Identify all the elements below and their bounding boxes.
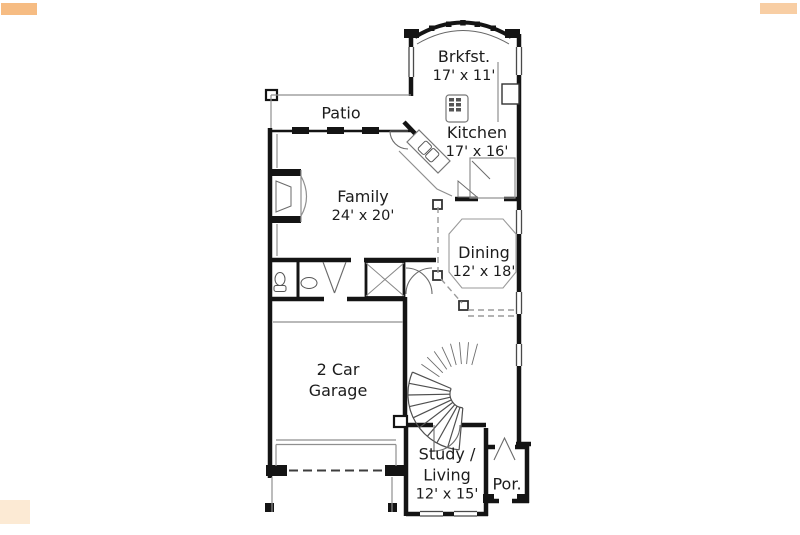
room-name-line2: Garage [309, 380, 368, 401]
powder-room [274, 273, 317, 292]
patio-door-swing [390, 131, 408, 149]
upper-flight-hatch [421, 342, 477, 377]
room-label-brkfst: Brkfst. 17' x 11' [433, 46, 496, 86]
room-label-dining: Dining 12' x 18' [453, 242, 516, 282]
refrigerator [502, 84, 519, 104]
room-name-line1: 2 Car [309, 359, 368, 380]
room-label-kitchen: Kitchen 17' x 16' [446, 122, 509, 162]
floor-plan-drawing [0, 0, 800, 535]
room-label-patio: Patio [321, 102, 360, 123]
bay-window-arc [415, 20, 511, 44]
room-label-family: Family 24' x 20' [332, 186, 395, 226]
room-name-line2: Living [416, 464, 479, 485]
fireplace [276, 181, 291, 212]
kitchen-corner-sink [407, 130, 450, 173]
room-name: Family [332, 186, 395, 207]
kitchen-island [446, 95, 468, 122]
toilet-icon [275, 273, 285, 286]
room-dims: 12' x 15' [416, 486, 479, 505]
hall-double-door [323, 262, 346, 293]
front-door-double-swing [494, 438, 515, 460]
room-dims: 12' x 18' [453, 263, 516, 282]
spiral-staircase [408, 342, 478, 450]
floor-plan-page: Brkfst. 17' x 11' Patio Kitchen 17' x 16… [0, 0, 800, 535]
room-name: Patio [321, 102, 360, 123]
room-dims: 17' x 16' [446, 143, 509, 162]
room-dims: 17' x 11' [433, 67, 496, 86]
room-label-porch: Por. [492, 473, 521, 494]
room-name: Por. [492, 473, 521, 494]
room-name: Kitchen [446, 122, 509, 143]
room-name-line1: Study / [416, 443, 479, 464]
cooktop-icon [449, 98, 461, 112]
pantry [470, 158, 515, 198]
room-name: Dining [453, 242, 516, 263]
hall-east-door-swings [406, 268, 432, 294]
room-dims: 24' x 20' [332, 207, 395, 226]
door-swings [323, 131, 515, 460]
room-label-study: Study / Living 12' x 15' [416, 443, 479, 504]
room-label-garage: 2 Car Garage [309, 359, 368, 401]
kitchen-dining-door [458, 181, 477, 197]
room-name: Brkfst. [433, 46, 496, 67]
sink-icon [301, 278, 317, 289]
closet-x-box [366, 262, 404, 298]
